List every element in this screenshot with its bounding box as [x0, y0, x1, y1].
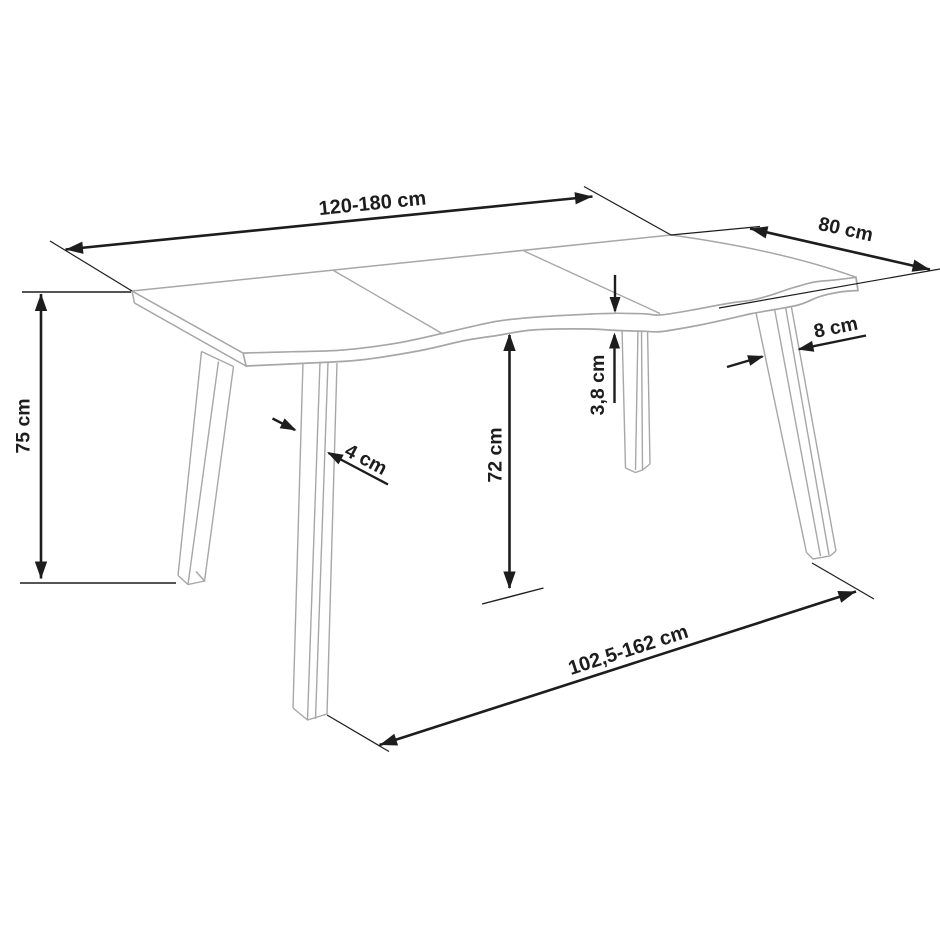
svg-text:80 cm: 80 cm	[816, 213, 875, 246]
svg-text:72 cm: 72 cm	[485, 427, 507, 482]
svg-text:75 cm: 75 cm	[13, 398, 35, 453]
svg-text:3,8 cm: 3,8 cm	[587, 355, 609, 416]
